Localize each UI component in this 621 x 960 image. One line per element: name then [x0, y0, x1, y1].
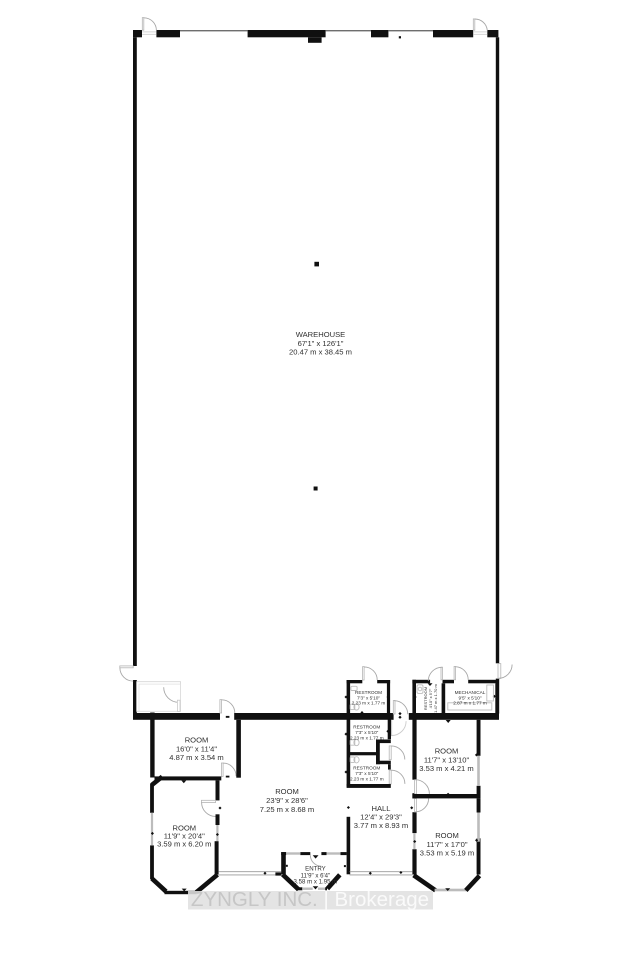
svg-text:20.47 m x 38.45 m: 20.47 m x 38.45 m	[289, 348, 352, 357]
svg-text:3.58 m x 1.95 m: 3.58 m x 1.95 m	[294, 879, 338, 886]
svg-text:2.23 m x 1.77 m: 2.23 m x 1.77 m	[350, 735, 384, 740]
svg-text:1.47 m x 1.70 m: 1.47 m x 1.70 m	[433, 683, 438, 712]
svg-text:ROOM: ROOM	[435, 831, 459, 840]
svg-text:3.53 m x 4.21 m: 3.53 m x 4.21 m	[419, 764, 473, 773]
svg-text:ZYNGLY INC. | Brokerage: ZYNGLY INC. | Brokerage	[191, 888, 429, 911]
svg-text:RESTROOM: RESTROOM	[353, 766, 380, 771]
svg-text:3.77 m x 8.93 m: 3.77 m x 8.93 m	[354, 821, 408, 830]
svg-text:ROOM: ROOM	[185, 736, 209, 745]
svg-text:RESTROOM: RESTROOM	[355, 690, 382, 695]
svg-text:2.23 m x 1.77 m: 2.23 m x 1.77 m	[352, 701, 386, 706]
svg-text:4.87 m x 3.54 m: 4.87 m x 3.54 m	[169, 753, 223, 762]
svg-text:ROOM: ROOM	[275, 787, 299, 796]
svg-text:7.25 m x 8.68 m: 7.25 m x 8.68 m	[260, 805, 314, 814]
svg-text:2.23 m x 1.77 m: 2.23 m x 1.77 m	[350, 776, 384, 781]
svg-text:WAREHOUSE: WAREHOUSE	[296, 330, 346, 339]
svg-text:23'9" x 28'6": 23'9" x 28'6"	[266, 796, 308, 805]
svg-text:3.53 m x 5.19 m: 3.53 m x 5.19 m	[420, 848, 474, 857]
svg-text:MECHANICAL: MECHANICAL	[455, 690, 486, 695]
svg-text:ROOM: ROOM	[435, 747, 459, 756]
svg-text:RESTROOM: RESTROOM	[353, 725, 380, 730]
svg-text:3.59 m x 6.20 m: 3.59 m x 6.20 m	[157, 840, 211, 849]
svg-text:2.87 m x 1.77 m: 2.87 m x 1.77 m	[453, 701, 487, 706]
svg-text:ENTRY: ENTRY	[305, 865, 326, 872]
